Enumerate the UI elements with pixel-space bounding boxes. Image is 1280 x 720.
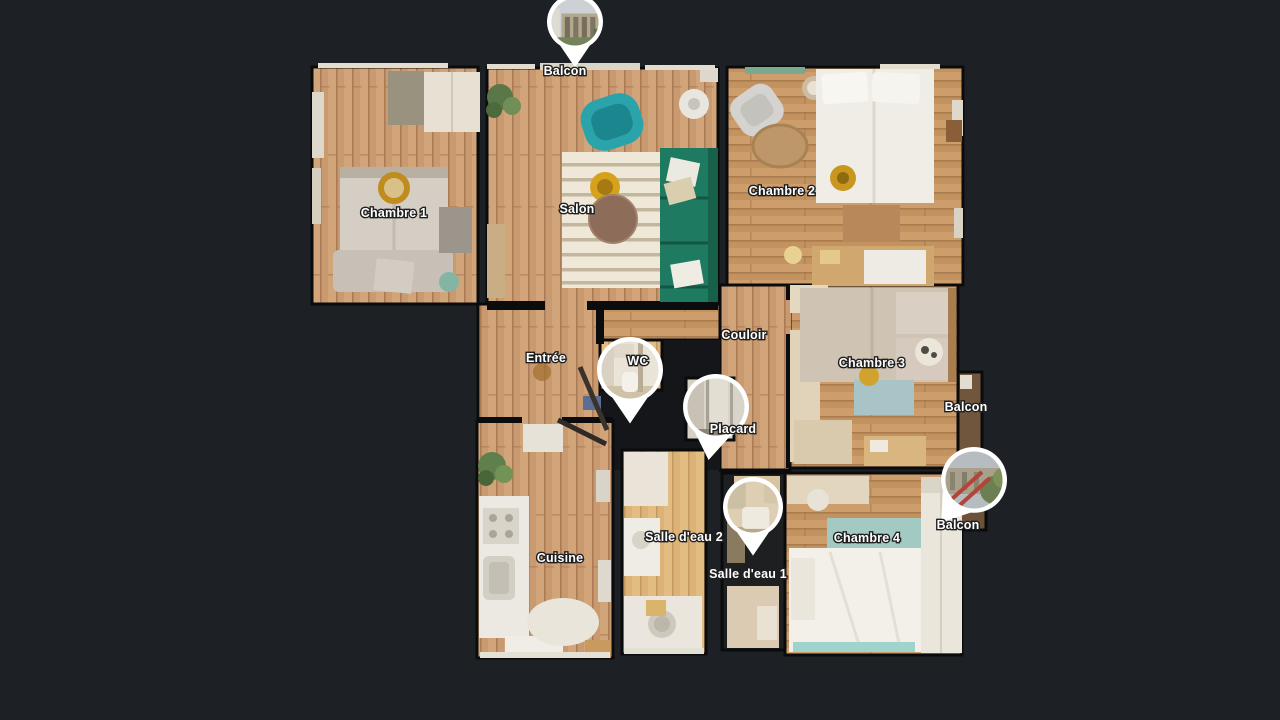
brown-rug [843, 205, 900, 242]
room-label-chambre-2: Chambre 2 [749, 184, 815, 198]
table [527, 598, 599, 646]
room-label-couloir: Couloir [721, 328, 766, 342]
desk-chair [864, 250, 926, 284]
cabinet [523, 424, 563, 452]
room-label-balcon-right: Balcon [945, 400, 988, 414]
pillow [373, 258, 414, 294]
room-label-wc: WC [627, 354, 648, 368]
washer [624, 596, 702, 652]
pillow [896, 292, 948, 334]
pano-marker-balcon-top[interactable] [546, 0, 604, 67]
side-table [915, 338, 943, 366]
floorplan-svg: BalconChambre 1SalonChambre 2CouloirEntr… [0, 0, 1280, 720]
room-label-entree: Entrée [526, 351, 566, 365]
teal-pouf [439, 272, 459, 292]
console [487, 224, 505, 298]
pillow [791, 558, 815, 620]
matterport-dollhouse-view[interactable]: BalconChambre 1SalonChambre 2CouloirEntr… [0, 0, 1280, 720]
desk-chair [807, 489, 829, 511]
bed [789, 548, 921, 652]
jute-rug [753, 125, 807, 167]
room-label-cuisine: Cuisine [537, 551, 584, 565]
stove [483, 508, 519, 544]
room-label-salle-deau-1: Salle d'eau 1 [709, 567, 787, 581]
bed [816, 69, 934, 203]
sofa-pillow [670, 260, 704, 289]
coffee-table [589, 195, 637, 243]
blue-rug [854, 380, 914, 415]
lamp [784, 246, 802, 264]
room-label-balcon-bottom: Balcon [937, 518, 980, 532]
room-label-chambre-4: Chambre 4 [834, 531, 900, 545]
pillow [871, 72, 921, 104]
kitchen-counter [479, 496, 529, 638]
cabinet [388, 71, 424, 125]
room-label-chambre-3: Chambre 3 [839, 356, 905, 370]
green-sofa [660, 148, 718, 302]
room-label-balcon-top: Balcon [544, 64, 587, 78]
room-label-salle-deau-2: Salle d'eau 2 [645, 530, 723, 544]
gold-wreath [381, 175, 407, 201]
room-label-chambre-1: Chambre 1 [361, 206, 427, 220]
grey-rug [439, 207, 472, 253]
room-label-placard: Placard [710, 422, 757, 436]
room-label-salon: Salon [559, 202, 594, 216]
pillow [821, 71, 869, 104]
